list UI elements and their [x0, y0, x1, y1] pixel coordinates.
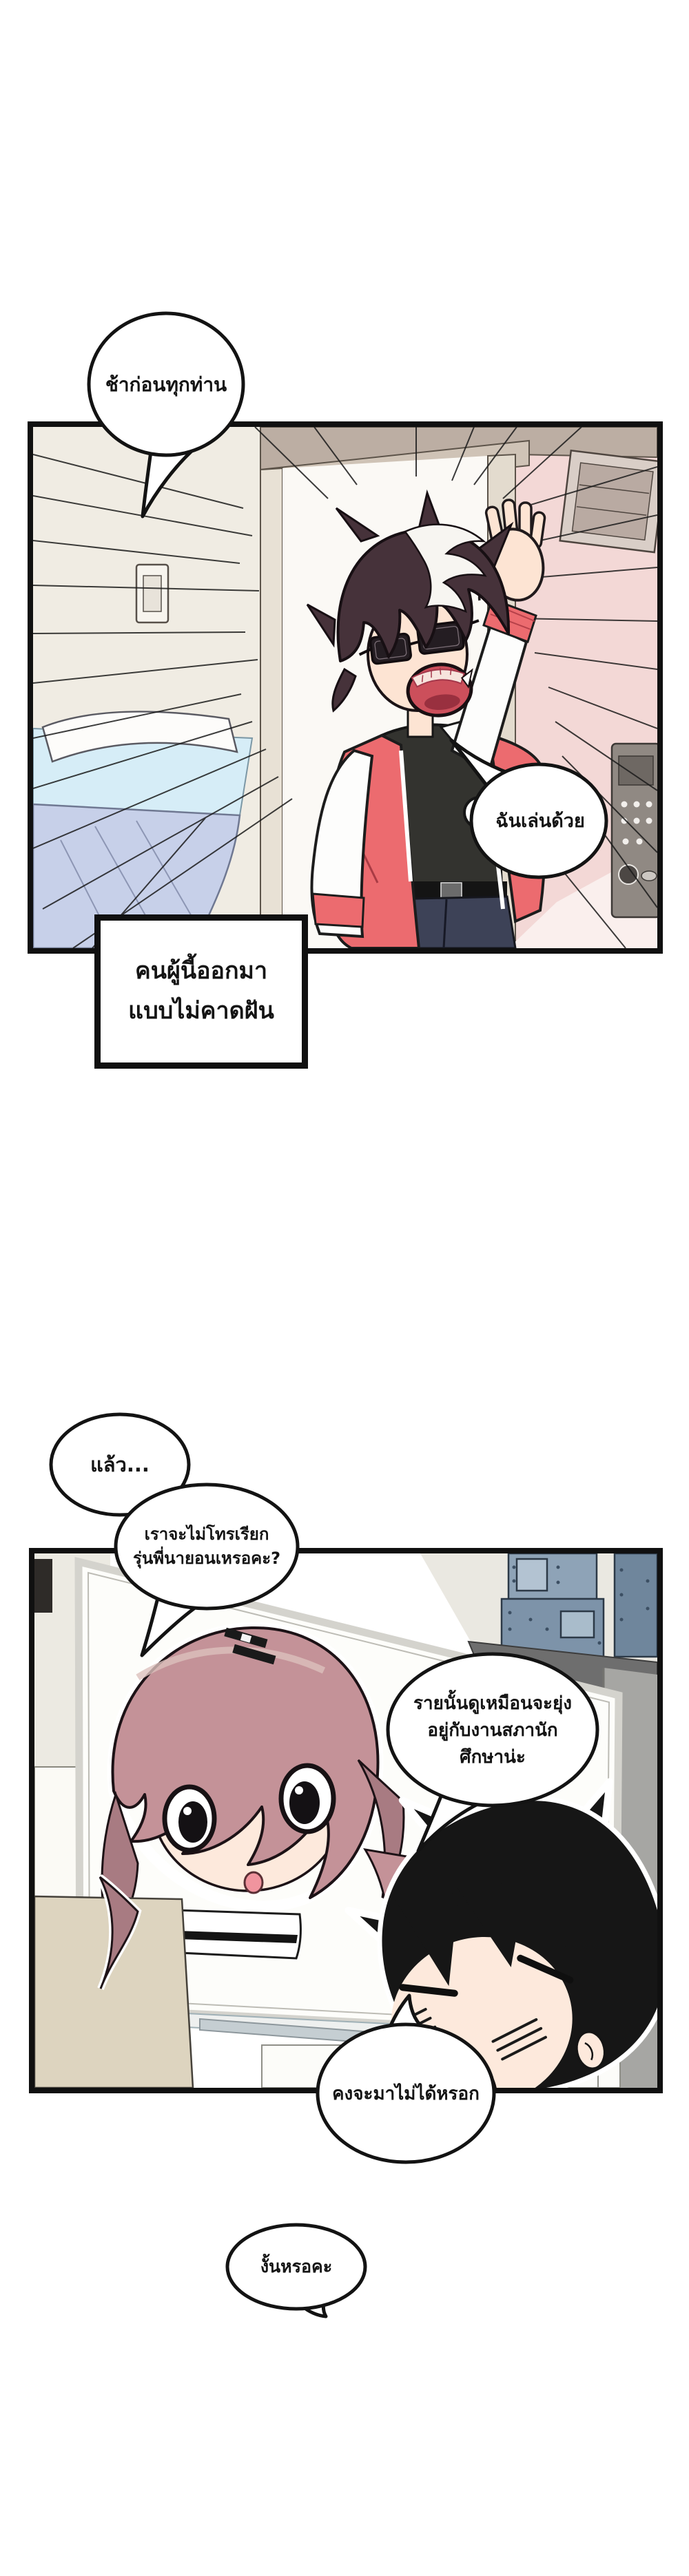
- bubble-text: รุ่นพี่นายอนเหรอคะ?: [133, 1547, 280, 1571]
- speech-bubble-is-that-so: งั้นหรอคะ: [224, 2221, 369, 2318]
- bubble-text: ช้าก่อนทุกท่าน: [105, 371, 227, 399]
- narration-line: แบบไม่คาดฝัน: [128, 992, 274, 1032]
- speech-bubble-play-too: ฉันเล่นด้วย: [448, 737, 609, 881]
- girl-collar: [176, 1910, 301, 1958]
- bubble-text: ฉันเล่นด้วย: [495, 808, 585, 835]
- bubble-text: ศึกษาน่ะ: [460, 1744, 526, 1771]
- speech-bubble-busy: รายนั้นดูเหมือนจะยุ่ง อยู่กับงานสภานัก ศ…: [384, 1651, 601, 1854]
- speech-bubble-cant-come: คงจะมาไม่ได้หรอก: [314, 1991, 497, 2165]
- narration-line: คนผู้นี้ออกมา: [135, 952, 267, 992]
- comic-page: คนผู้นี้ออกมา แบบไม่คาดฝัน ช้าก่อนทุกท่า…: [0, 0, 689, 2576]
- bubble-text: อยู่กับงานสภานัก: [427, 1717, 557, 1744]
- door-intercom: [612, 744, 657, 917]
- speech-bubble-call-senior: เราจะไม่โทรเรียก รุ่นพี่นายอนเหรอคะ?: [112, 1482, 302, 1658]
- bubble-text: เราจะไม่โทรเรียก: [145, 1522, 269, 1547]
- bubble-text: งั้นหรอคะ: [260, 2254, 332, 2279]
- narration-box: คนผู้นี้ออกมา แบบไม่คาดฝัน: [94, 914, 308, 1069]
- building-outside-window: [502, 1553, 657, 1657]
- light-switch: [136, 565, 168, 622]
- girl-mouth: [245, 1872, 263, 1893]
- bubble-text: รายนั้นดูเหมือนจะยุ่ง: [413, 1690, 572, 1717]
- left-cuff: [313, 894, 364, 927]
- bubble-text: คงจะมาไม่ได้หรอก: [332, 2082, 480, 2108]
- bubble-text: แล้ว...: [90, 1450, 150, 1479]
- speech-bubble-wait: ช้าก่อนทุกท่าน: [85, 310, 247, 520]
- wall-vent: [560, 450, 657, 552]
